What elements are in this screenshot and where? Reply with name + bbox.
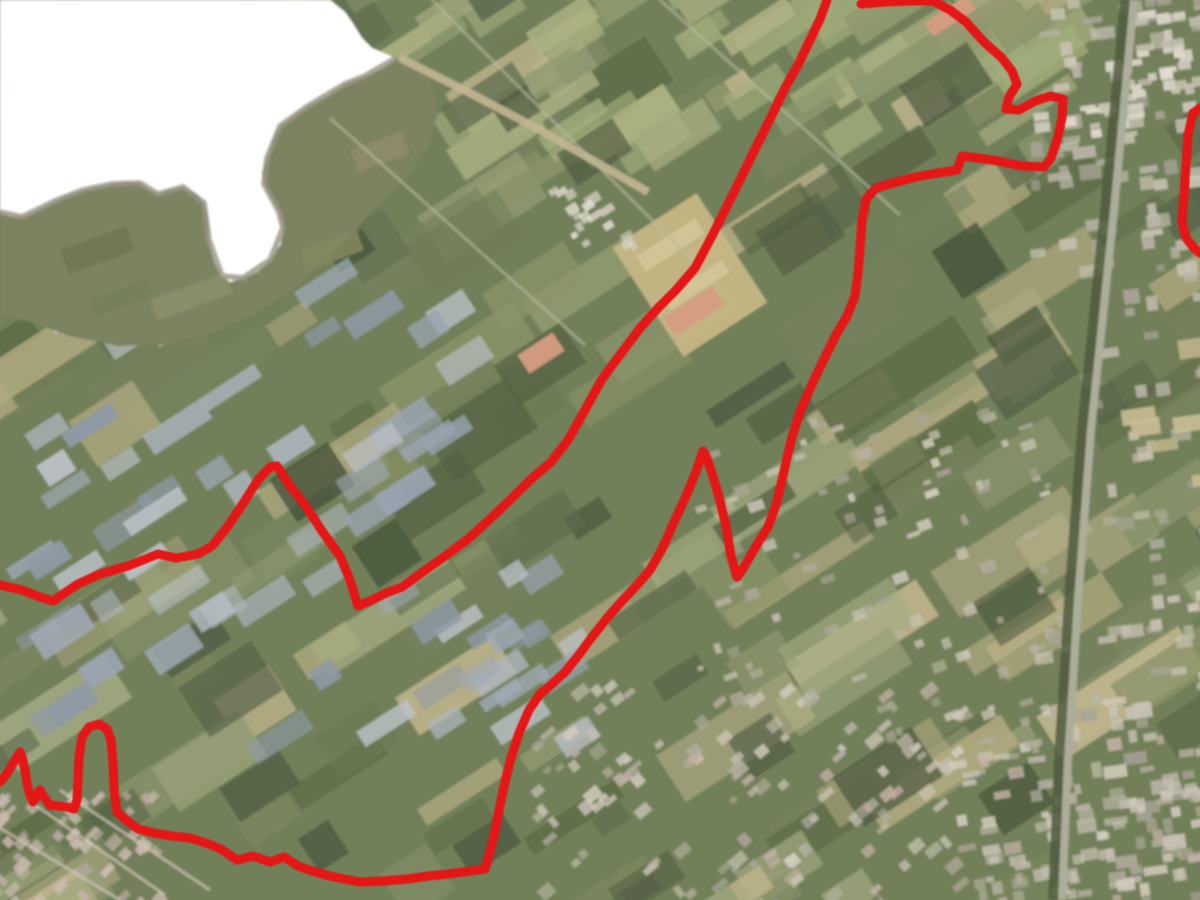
aerial-imagery (0, 0, 1200, 900)
screenshot-root (0, 0, 1200, 900)
satellite-map (0, 0, 1200, 900)
